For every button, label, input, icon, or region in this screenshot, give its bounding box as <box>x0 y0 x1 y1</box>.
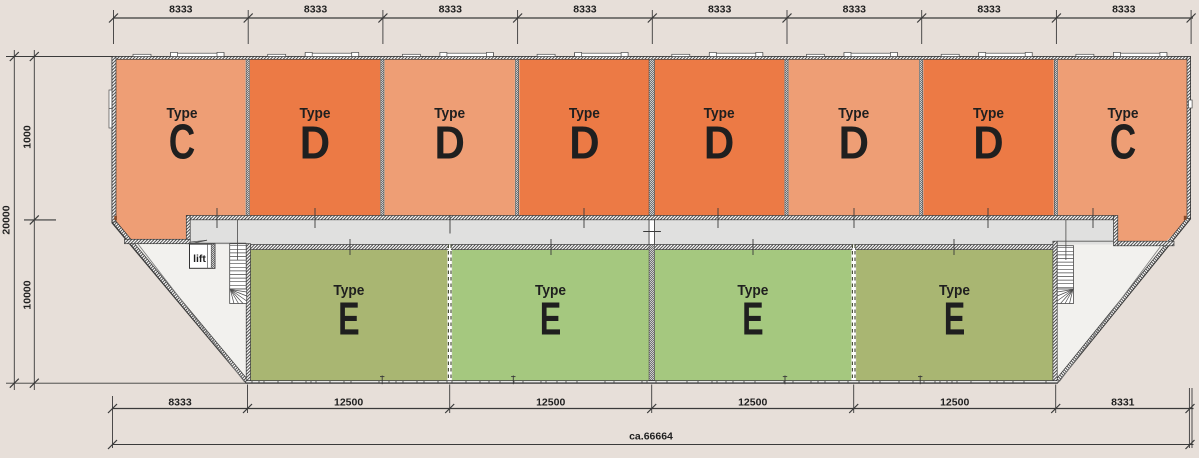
svg-text:12500: 12500 <box>738 397 767 409</box>
svg-text:D: D <box>839 117 869 169</box>
svg-text:ca.66664: ca.66664 <box>629 431 673 443</box>
svg-text:1000: 1000 <box>22 125 34 149</box>
svg-text:lift: lift <box>193 253 206 265</box>
svg-text:8333: 8333 <box>304 4 328 16</box>
svg-text:D: D <box>704 117 734 169</box>
svg-text:D: D <box>973 117 1003 169</box>
svg-text:8333: 8333 <box>169 4 193 16</box>
svg-text:8333: 8333 <box>573 4 597 16</box>
svg-text:8333: 8333 <box>168 397 192 409</box>
svg-text:8333: 8333 <box>1112 4 1136 16</box>
svg-text:C: C <box>169 116 196 170</box>
svg-text:E: E <box>742 293 764 345</box>
svg-text:E: E <box>338 293 360 345</box>
svg-text:12500: 12500 <box>334 397 363 409</box>
svg-text:D: D <box>435 117 465 169</box>
svg-text:8333: 8333 <box>439 4 463 16</box>
svg-text:12500: 12500 <box>536 397 565 409</box>
svg-text:C: C <box>1110 116 1137 170</box>
svg-text:E: E <box>944 293 966 345</box>
svg-text:D: D <box>300 117 330 169</box>
svg-text:E: E <box>540 293 562 345</box>
svg-text:8333: 8333 <box>708 4 732 16</box>
svg-text:12500: 12500 <box>940 397 969 409</box>
svg-text:D: D <box>569 117 599 169</box>
svg-text:20000: 20000 <box>1 205 13 234</box>
svg-text:10000: 10000 <box>22 280 34 309</box>
svg-text:8333: 8333 <box>843 4 867 16</box>
svg-text:8333: 8333 <box>977 4 1001 16</box>
svg-text:8331: 8331 <box>1111 397 1135 409</box>
